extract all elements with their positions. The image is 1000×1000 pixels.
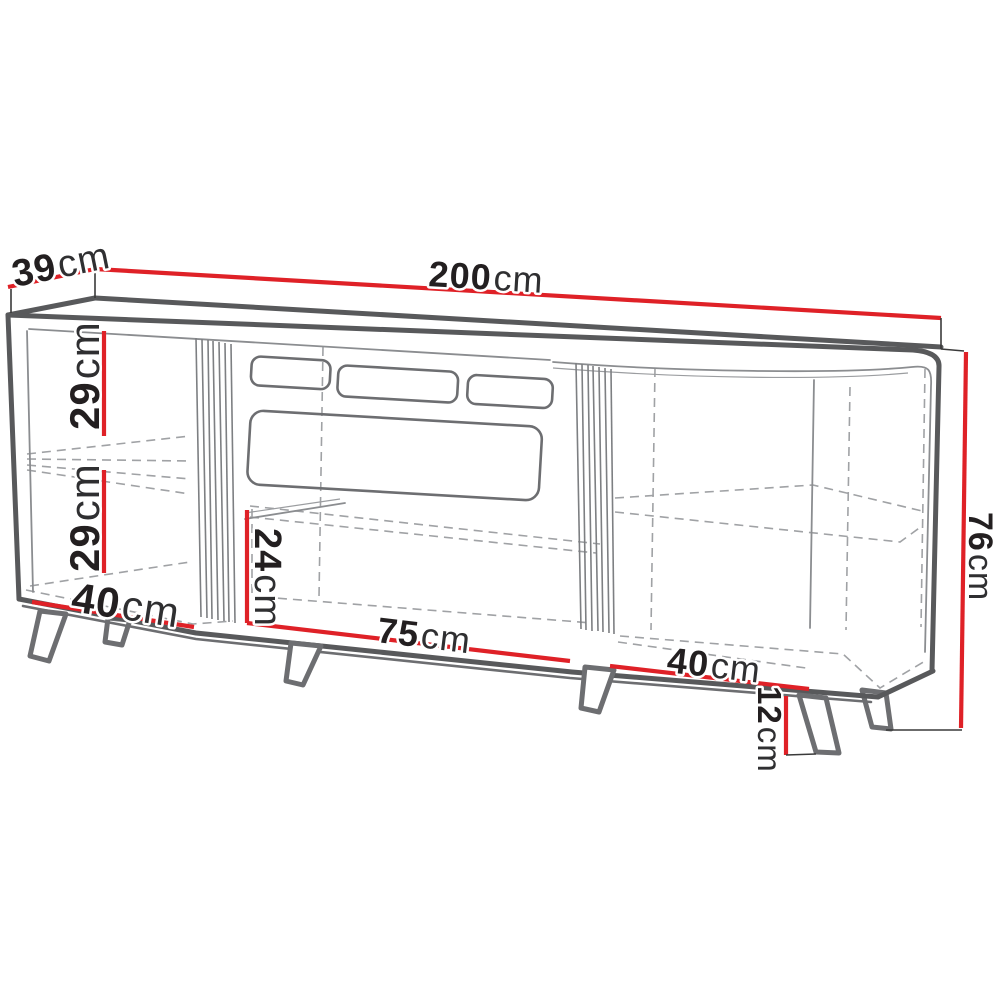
vent-opening-1 <box>250 356 331 389</box>
front-openings <box>245 356 554 501</box>
interior-dashed-lines <box>26 347 925 688</box>
carcass-outline <box>8 298 941 702</box>
dim-label-leg-height: 12cm <box>751 686 788 773</box>
extension-lines <box>11 271 964 755</box>
dim-label-left-width: 40cm <box>69 573 184 636</box>
top-panel-depth-edge <box>8 298 95 315</box>
dim-label-width: 200cm <box>428 253 545 301</box>
furniture-drawing: 39cm 200cm 76cm 29cm 29cm 40cm 24cm 75cm… <box>0 0 1000 1000</box>
left-slatted-door <box>196 338 235 623</box>
dim-label-shelf-upper: 29cm <box>61 321 108 430</box>
dim-label-shelf-lower: 29cm <box>61 463 108 572</box>
leg-front-left <box>30 611 66 661</box>
leg-mid-right <box>581 667 614 712</box>
dim-label-center-height: 24cm <box>246 528 288 627</box>
dim-label-depth: 39cm <box>8 235 113 296</box>
left-side-edge <box>8 315 19 599</box>
leg-front-right <box>799 695 839 753</box>
media-niche <box>247 410 543 501</box>
vent-opening-3 <box>467 375 554 409</box>
vent-opening-2 <box>337 365 459 403</box>
left-inner-edge <box>27 331 33 592</box>
dimension-diagram: 39cm 200cm 76cm 29cm 29cm 40cm 24cm 75cm… <box>0 0 1000 1000</box>
leg-mid-left <box>286 643 321 685</box>
bottom-right-edge <box>878 671 933 697</box>
dim-label-height: 76cm <box>961 512 999 601</box>
dimension-labels: 39cm 200cm 76cm 29cm 29cm 40cm 24cm 75cm… <box>8 235 999 773</box>
right-slatted-door <box>576 363 614 634</box>
